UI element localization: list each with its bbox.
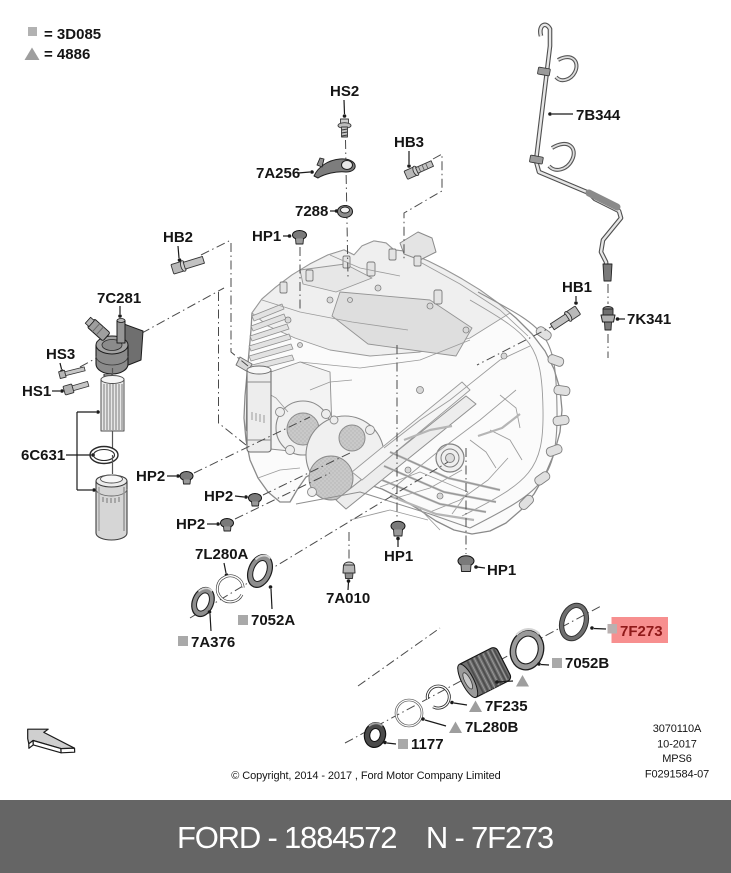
svg-text:© Copyright, 2014 - 2017 , For: © Copyright, 2014 - 2017 , Ford Motor Co… bbox=[231, 770, 500, 782]
svg-text:F0291584-07: F0291584-07 bbox=[645, 769, 709, 781]
svg-text:7A376: 7A376 bbox=[191, 634, 235, 651]
svg-text:HP1: HP1 bbox=[252, 228, 281, 245]
svg-text:HS2: HS2 bbox=[330, 83, 359, 100]
svg-text:HP2: HP2 bbox=[176, 516, 205, 533]
svg-text:7F273: 7F273 bbox=[620, 623, 663, 640]
svg-text:7L280A: 7L280A bbox=[195, 546, 249, 563]
svg-text:7K341: 7K341 bbox=[627, 311, 671, 328]
svg-text:= 4886: = 4886 bbox=[44, 46, 90, 63]
svg-text:HP1: HP1 bbox=[384, 548, 413, 565]
svg-text:7B344: 7B344 bbox=[576, 107, 621, 124]
svg-text:7L280B: 7L280B bbox=[465, 719, 519, 736]
svg-text:7A010: 7A010 bbox=[326, 590, 370, 607]
svg-text:FORD - 1884572 N - 7F273: FORD - 1884572 N - 7F273 bbox=[177, 820, 553, 855]
svg-text:HP1: HP1 bbox=[487, 562, 516, 579]
svg-text:HP2: HP2 bbox=[204, 488, 233, 505]
svg-text:1177: 1177 bbox=[411, 736, 444, 753]
svg-text:3070110A: 3070110A bbox=[653, 723, 702, 735]
svg-text:HB3: HB3 bbox=[394, 134, 424, 151]
svg-text:HS1: HS1 bbox=[22, 383, 51, 400]
svg-text:HS3: HS3 bbox=[46, 346, 75, 363]
svg-text:7C281: 7C281 bbox=[97, 290, 141, 307]
svg-text:HB2: HB2 bbox=[163, 229, 193, 246]
svg-text:10-2017: 10-2017 bbox=[657, 739, 697, 751]
svg-text:7052A: 7052A bbox=[251, 612, 295, 629]
svg-text:7288: 7288 bbox=[295, 203, 328, 220]
svg-text:7A256: 7A256 bbox=[256, 165, 300, 182]
svg-text:6C631: 6C631 bbox=[21, 447, 65, 464]
svg-text:HB1: HB1 bbox=[562, 279, 592, 296]
svg-text:HP2: HP2 bbox=[136, 468, 165, 485]
svg-text:7052B: 7052B bbox=[565, 655, 609, 672]
svg-text:7F235: 7F235 bbox=[485, 698, 528, 715]
svg-text:= 3D085: = 3D085 bbox=[44, 26, 101, 43]
svg-text:MPS6: MPS6 bbox=[662, 753, 692, 765]
